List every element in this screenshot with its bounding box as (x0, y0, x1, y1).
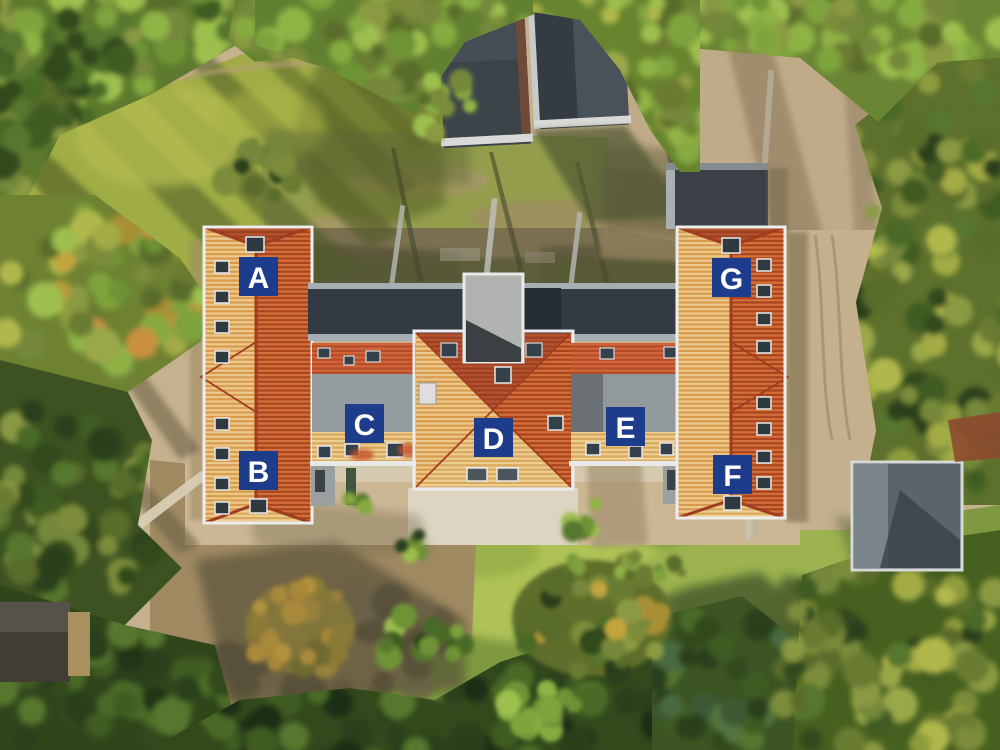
svg-text:E: E (615, 412, 635, 445)
svg-text:D: D (483, 423, 505, 456)
svg-text:A: A (248, 262, 270, 295)
svg-text:C: C (354, 409, 376, 442)
svg-text:G: G (720, 263, 743, 296)
svg-text:F: F (723, 460, 741, 493)
svg-text:B: B (248, 456, 270, 489)
